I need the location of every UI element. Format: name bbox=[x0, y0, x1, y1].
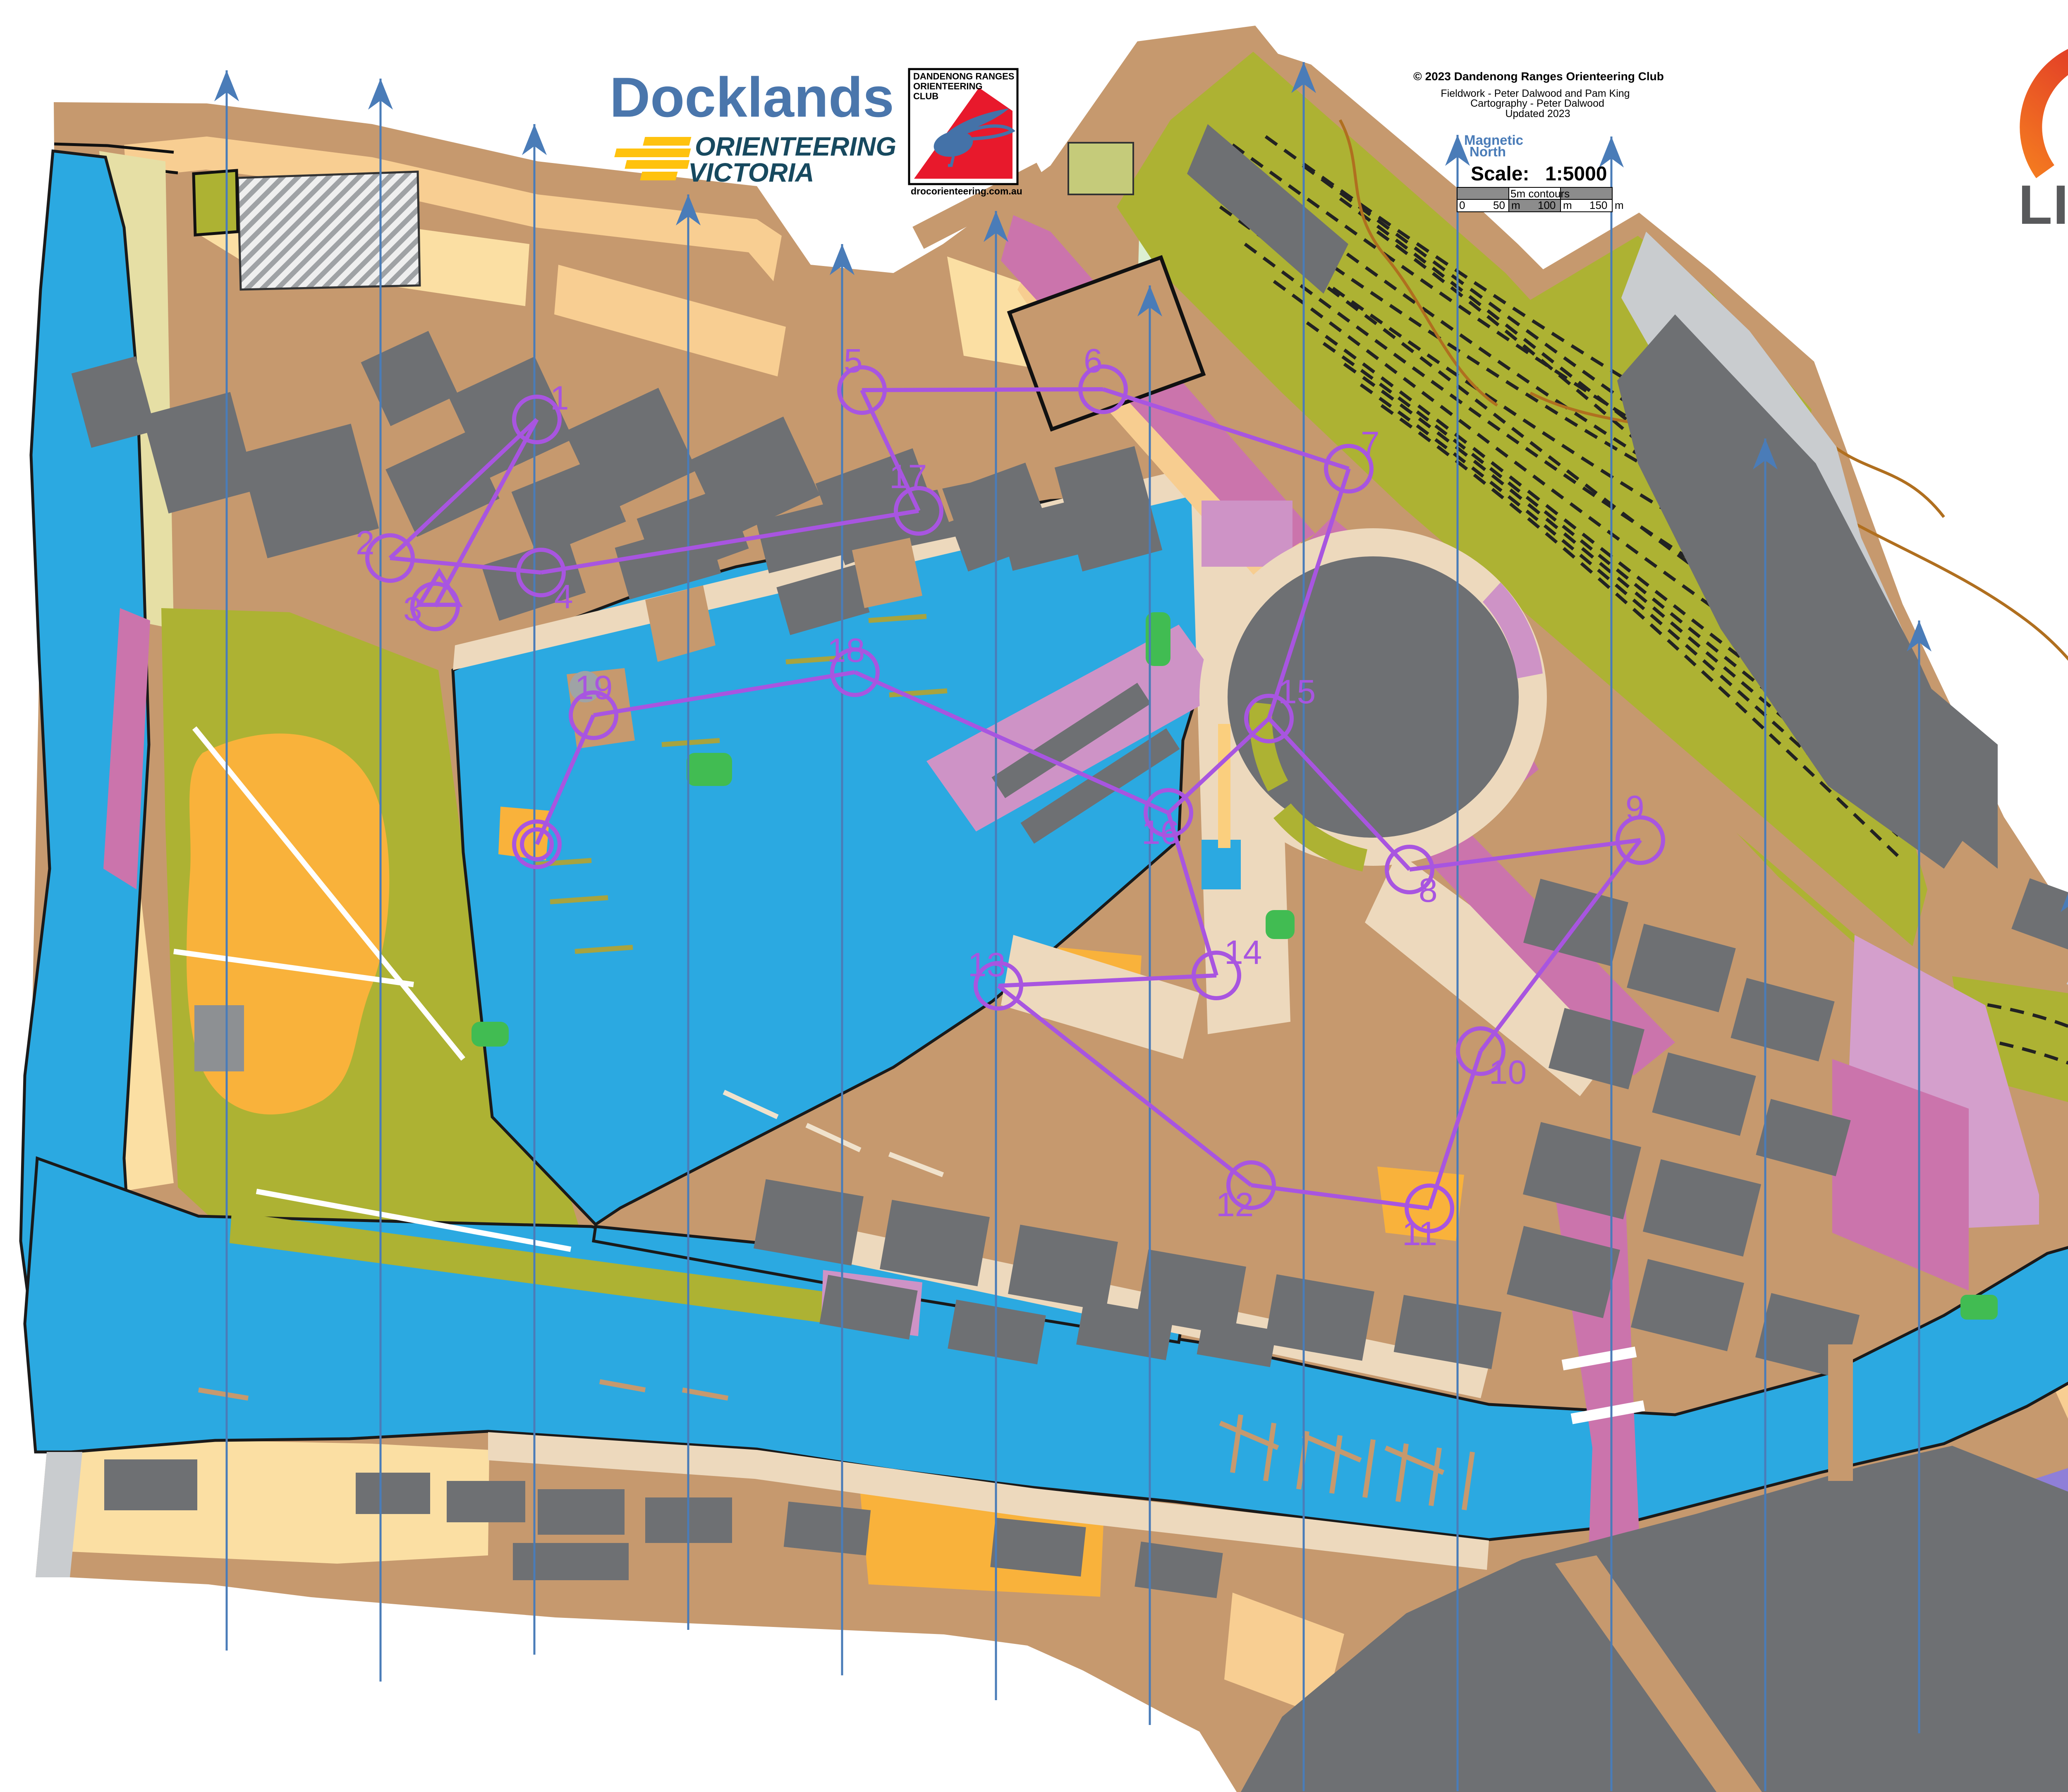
svg-text:LIVELOX: LIVELOX bbox=[2018, 174, 2068, 236]
svg-text:1: 1 bbox=[550, 379, 569, 417]
svg-text:3: 3 bbox=[403, 590, 422, 628]
svg-text:18: 18 bbox=[827, 632, 865, 669]
svg-text:DANDENONG RANGES: DANDENONG RANGES bbox=[913, 71, 1014, 81]
svg-text:150: 150 bbox=[1589, 199, 1607, 211]
svg-text:50: 50 bbox=[1493, 199, 1505, 211]
svg-text:12: 12 bbox=[1216, 1186, 1254, 1224]
svg-text:m: m bbox=[1615, 199, 1624, 211]
svg-text:Updated 2023: Updated 2023 bbox=[1505, 108, 1570, 120]
svg-text:5m contours: 5m contours bbox=[1510, 187, 1570, 200]
svg-text:VICTORIA: VICTORIA bbox=[688, 158, 814, 187]
svg-text:5: 5 bbox=[844, 342, 863, 380]
svg-text:17: 17 bbox=[889, 458, 927, 496]
svg-text:2: 2 bbox=[356, 524, 375, 562]
svg-text:7: 7 bbox=[1361, 425, 1380, 462]
svg-text:19: 19 bbox=[575, 669, 613, 707]
svg-text:8: 8 bbox=[1419, 872, 1438, 909]
svg-text:© 2023 Dandenong Ranges Orient: © 2023 Dandenong Ranges Orienteering Clu… bbox=[1413, 70, 1664, 83]
svg-text:North: North bbox=[1470, 144, 1506, 159]
svg-text:10: 10 bbox=[1489, 1054, 1527, 1091]
svg-text:ORIENTEERING: ORIENTEERING bbox=[695, 132, 896, 161]
svg-text:6: 6 bbox=[1084, 342, 1103, 380]
svg-text:1:5000: 1:5000 bbox=[1545, 163, 1607, 185]
svg-text:m: m bbox=[1511, 199, 1520, 211]
svg-text:CLUB: CLUB bbox=[913, 91, 938, 101]
svg-text:14: 14 bbox=[1224, 934, 1262, 971]
svg-text:9: 9 bbox=[1625, 789, 1644, 827]
svg-text:Scale:: Scale: bbox=[1471, 163, 1529, 185]
svg-text:Docklands: Docklands bbox=[610, 66, 894, 129]
svg-text:11: 11 bbox=[1402, 1215, 1437, 1253]
svg-text:m: m bbox=[1563, 199, 1572, 211]
svg-text:Cartography - Peter Dalwood: Cartography - Peter Dalwood bbox=[1470, 98, 1604, 109]
svg-text:0: 0 bbox=[1459, 199, 1465, 211]
svg-text:100: 100 bbox=[1538, 199, 1556, 211]
svg-text:13: 13 bbox=[968, 946, 1005, 984]
svg-text:15: 15 bbox=[1278, 673, 1316, 711]
svg-text:ORIENTEERING: ORIENTEERING bbox=[913, 81, 982, 91]
svg-text:4: 4 bbox=[554, 578, 573, 616]
svg-text:16: 16 bbox=[1142, 814, 1179, 851]
svg-text:drocorienteering.com.au: drocorienteering.com.au bbox=[911, 186, 1022, 196]
